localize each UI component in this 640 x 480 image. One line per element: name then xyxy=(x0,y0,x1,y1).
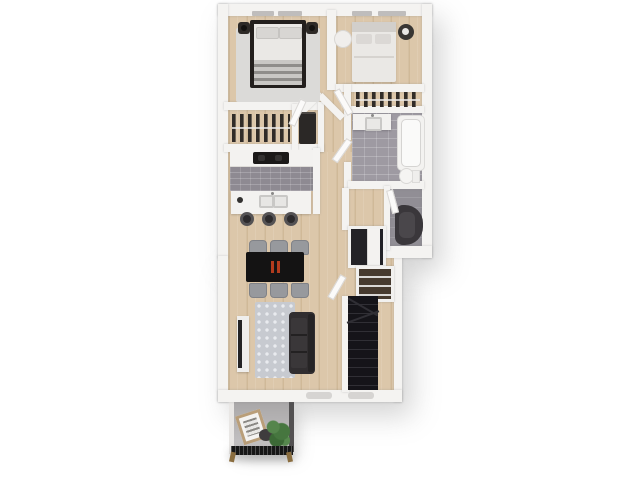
wall-nook-right xyxy=(318,102,324,152)
kitchen-counter xyxy=(230,150,313,167)
floor-kitchen-tile xyxy=(230,166,313,191)
shoe-shelf-rows xyxy=(359,269,391,299)
sofa-seam-1 xyxy=(291,334,307,336)
sofa-backrest xyxy=(308,314,314,372)
kitchen-cooktop xyxy=(253,152,289,164)
bedroom2-pillow-left xyxy=(356,34,372,44)
bedroom1-lamp-left xyxy=(241,25,247,31)
window-bedroom2-a xyxy=(352,11,372,16)
wall-bedroom-divider xyxy=(327,10,336,90)
bedroom2-blanket-fold xyxy=(354,56,394,58)
closet2-hanging-clothes xyxy=(356,92,420,107)
bar-stool-3 xyxy=(284,212,298,226)
bar-stool-1 xyxy=(240,212,254,226)
bedroom2-nightstand-decor xyxy=(402,28,409,35)
cooktop-burner-right xyxy=(275,155,282,161)
wall-kitchen-right xyxy=(313,148,320,214)
balcony-railing-foot-left xyxy=(229,452,236,463)
wall-closet2-bottom xyxy=(348,106,424,113)
island-faucet xyxy=(271,192,274,195)
bathtub xyxy=(397,115,425,171)
dining-table xyxy=(246,252,304,282)
bedroom2-bed xyxy=(352,22,396,82)
bathtub-basin xyxy=(401,119,421,167)
bedroom1-nightstand-right xyxy=(306,22,318,34)
balcony xyxy=(229,400,295,464)
dining-chair-bottom-1 xyxy=(249,283,267,298)
bedroom2-nightstand xyxy=(398,24,414,40)
bedroom2-ottoman xyxy=(334,30,352,48)
closet1-dresser xyxy=(299,112,316,144)
storage-closet-door-panel xyxy=(367,229,380,265)
stair-winder-line-2 xyxy=(347,310,380,324)
wall-right-lower xyxy=(394,256,402,402)
balcony-door-sill-left xyxy=(306,392,332,399)
sofa-seats xyxy=(291,318,307,368)
kitchen-island xyxy=(231,191,311,214)
floor-plan-render xyxy=(0,0,640,480)
bathroom-sink xyxy=(365,117,382,131)
bedroom1-lamp-right xyxy=(309,25,315,31)
wall-step-corner xyxy=(384,246,432,258)
balcony-plant xyxy=(266,418,290,448)
wall-corridor-right xyxy=(342,188,349,230)
bedroom1-pillow-left xyxy=(256,27,279,39)
wall-left-lower xyxy=(218,256,228,402)
staircase xyxy=(348,296,378,390)
dining-chair-bottom-2 xyxy=(270,283,288,298)
tv-screen xyxy=(238,320,242,368)
wall-left-upper xyxy=(218,4,228,258)
tv-console xyxy=(237,316,249,372)
living-sofa xyxy=(289,312,315,374)
bedroom1-pillow-right xyxy=(279,27,302,39)
storage-closet xyxy=(348,226,386,268)
bathroom-vanity xyxy=(353,114,391,130)
balcony-door-sill-right xyxy=(348,392,374,399)
toilet-tank xyxy=(412,170,420,183)
entry-armchair-seat xyxy=(399,212,415,238)
cooktop-burner-left xyxy=(258,155,265,161)
window-bedroom2-b xyxy=(378,11,406,16)
bedroom2-headboard xyxy=(352,22,396,32)
closet1-hanging-clothes xyxy=(232,114,290,142)
dining-centerpiece-red xyxy=(271,261,280,273)
island-sink-left xyxy=(259,195,274,208)
window-bedroom1-a xyxy=(252,11,274,16)
window-bedroom1-b xyxy=(278,11,302,16)
sofa-seam-2 xyxy=(291,351,307,353)
bar-stool-2 xyxy=(262,212,276,226)
bedroom2-pillow-right xyxy=(375,34,391,44)
balcony-railing xyxy=(231,446,293,455)
bedroom1-bed xyxy=(250,20,306,88)
island-decor-dark xyxy=(237,197,243,203)
bedroom1-nightstand-left xyxy=(238,22,250,34)
dining-chair-bottom-3 xyxy=(291,283,309,298)
bathroom-faucet xyxy=(371,114,374,117)
bedroom1-striped-blanket xyxy=(254,60,302,85)
island-sink-right xyxy=(273,195,288,208)
